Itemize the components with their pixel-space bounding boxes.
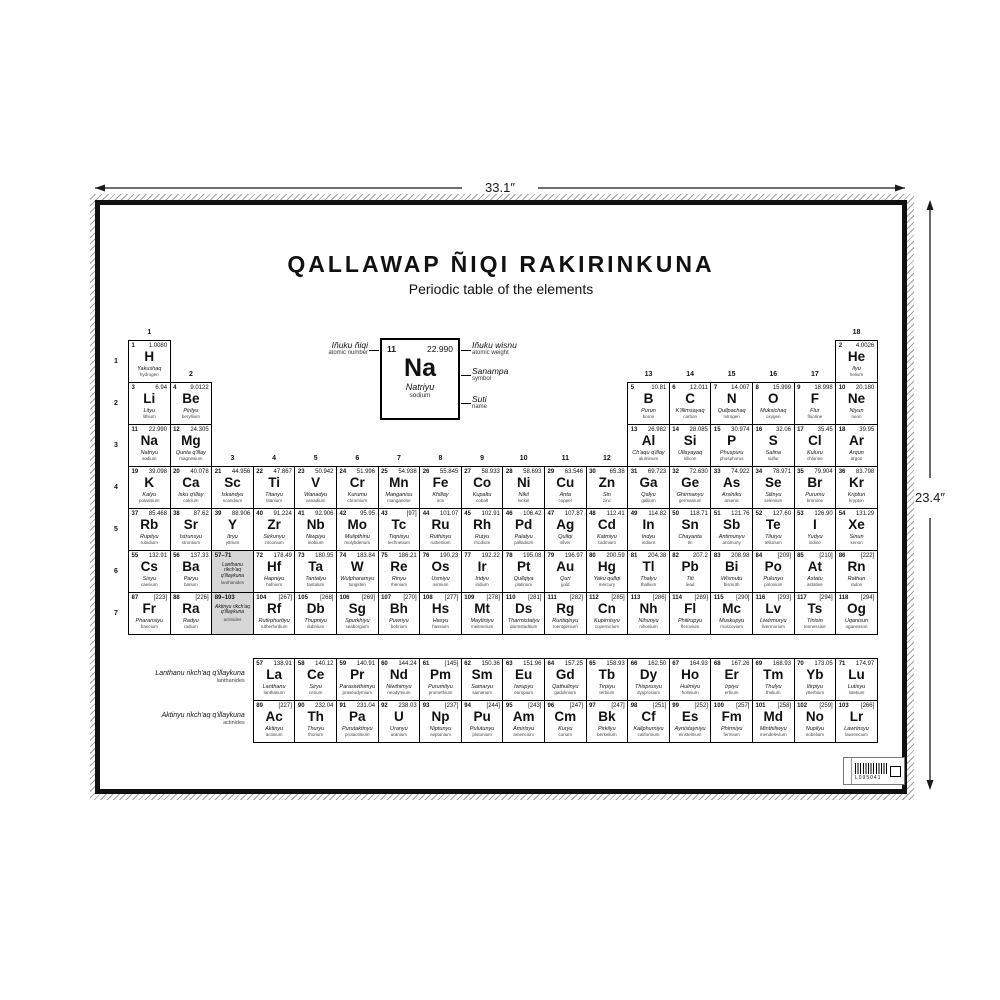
element-cell-Te: 52127.60TeTiluryutellurium <box>752 508 795 551</box>
element-cell-Zr: 4091.224ZrSirkunyuzirconium <box>253 508 296 551</box>
element-cell-Cm: 96[247]CmKuryucurium <box>544 700 587 743</box>
group-label-18: 18 <box>835 329 878 336</box>
period-label-2: 2 <box>108 400 124 407</box>
period-label-1: 1 <box>108 358 124 365</box>
element-cell-F: 918.998FFlurfluorine <box>794 382 837 425</box>
element-cell-At: 85[210]AtAstatuastatine <box>794 550 837 593</box>
group-label-3: 3 <box>211 455 254 462</box>
element-cell-As: 3374.922AsArsinikuarsenic <box>710 466 753 509</box>
group-label-14: 14 <box>669 371 712 378</box>
group-label-5: 5 <box>294 455 337 462</box>
element-cell-Og: 118[294]OgUqanisunoganesson <box>835 592 878 635</box>
element-cell-Lv: 116[293]LvLiwirmuryulivermorium <box>752 592 795 635</box>
element-cell-Kr: 3683.798KrKriptunkrypton <box>835 466 878 509</box>
placeholder-cell-89–103: 89–103Aktinyu rikch'aq q'illaykunaactini… <box>211 592 254 635</box>
element-cell-V: 2350.942VWanadyuvanadium <box>294 466 337 509</box>
element-cell-Fe: 2655.845FeKhillayiron <box>419 466 462 509</box>
element-cell-Be: 49.0122BePirilyuberyllium <box>170 382 213 425</box>
element-cell-Pu: 94[244]PuPulutunyuplutonium <box>461 700 504 743</box>
element-cell-Re: 75186.21ReRinyurhenium <box>378 550 421 593</box>
element-cell-U: 92238.03UUranyuuranium <box>378 700 421 743</box>
width-dimension-label: 33.1″ <box>485 180 515 195</box>
element-cell-Er: 68167.26ErIrpiyuerbium <box>710 658 753 701</box>
element-cell-Eu: 63151.96EuIwrupyueuropium <box>502 658 545 701</box>
element-cell-Ti: 2247.867TiTitanyutitanium <box>253 466 296 509</box>
element-cell-Tl: 81204.38TlThalyuthallium <box>627 550 670 593</box>
group-label-8: 8 <box>419 455 462 462</box>
period-label-4: 4 <box>108 484 124 491</box>
period-label-6: 6 <box>108 568 124 575</box>
element-cell-Mo: 4295.95MoMulipthinumolybdenum <box>336 508 379 551</box>
element-cell-Rf: 104[267]RfRutirphurtiyurutherfordium <box>253 592 296 635</box>
element-cell-Sb: 51121.76SbAntimunyuantimony <box>710 508 753 551</box>
element-cell-Tb: 65158.93TbTirpiyuterbium <box>586 658 629 701</box>
periodic-table: 11.0080HYakushaqhydrogen24.0026HeIlyuhel… <box>100 205 902 789</box>
element-cell-Ca: 2040.078CaIsku q'illaycalcium <box>170 466 213 509</box>
element-cell-Fr: 87[223]FrPharansiyufrancium <box>128 592 171 635</box>
element-cell-Hg: 80200.59HgYaku qullqimercury <box>586 550 629 593</box>
element-cell-Md: 101[258]MdMinthiliwyumendelevium <box>752 700 795 743</box>
element-cell-Rg: 111[282]RgRuntiqinyuroentgenium <box>544 592 587 635</box>
element-cell-H: 11.0080HYakushaqhydrogen <box>128 340 171 383</box>
element-cell-Fl: 114[289]FlPhilirupyuflerovium <box>669 592 712 635</box>
barcode-stripes <box>855 763 888 774</box>
actinides-row-label: Aktinyu rikch'aq q'illaykunaactinides <box>105 712 245 726</box>
element-cell-Bi: 83208.98BiWismutubismuth <box>710 550 753 593</box>
poster: QALLAWAP ÑIQI RAKIRINKUNA Periodic table… <box>95 200 907 794</box>
element-cell-Si: 1428.085SiUllayayaqsilicon <box>669 424 712 467</box>
element-cell-Sr: 3887.62SrIstrunsyustrontium <box>170 508 213 551</box>
group-label-16: 16 <box>752 371 795 378</box>
element-cell-Sn: 50118.71SnChayantatin <box>669 508 712 551</box>
element-cell-Lu: 71174.97LuLutisyulutetium <box>835 658 878 701</box>
element-cell-Se: 3478.971SeSilinyuselenium <box>752 466 795 509</box>
page: 33.1″ 23.4″ QALLAWAP ÑIQI RAKIRINKUNA Pe… <box>0 0 1000 1000</box>
element-cell-Ag: 47107.87AgQullqisilver <box>544 508 587 551</box>
element-cell-Pa: 91231.04PaPurutaktinyuprotactinium <box>336 700 379 743</box>
period-label-7: 7 <box>108 610 124 617</box>
element-cell-Cd: 48112.41CdKatmiyucadmium <box>586 508 629 551</box>
element-cell-B: 510.81BPurunboron <box>627 382 670 425</box>
period-label-5: 5 <box>108 526 124 533</box>
barcode-code: L095041 <box>855 775 888 781</box>
element-cell-Nd: 60144.24NdNiwthimyuneodymium <box>378 658 421 701</box>
group-label-10: 10 <box>502 455 545 462</box>
element-cell-Mn: 2554.938MnManganisumanganese <box>378 466 421 509</box>
element-cell-Am: 95[243]AmAmirisyuamericium <box>502 700 545 743</box>
height-dimension-label: 23.4″ <box>915 490 945 505</box>
element-cell-Gd: 64157.25GdQathulinyugadolinium <box>544 658 587 701</box>
element-cell-Db: 105[268]DbThupniyudubnium <box>294 592 337 635</box>
element-cell-W: 74183.84WWulpharamyutungsten <box>336 550 379 593</box>
element-cell-Ce: 58140.12CeSiryucerium <box>294 658 337 701</box>
element-cell-Cl: 1735.45ClKuluruchlorine <box>794 424 837 467</box>
barcode-sticker: L095041 <box>843 757 905 785</box>
element-cell-Rh: 45102.91RhRutyurhodium <box>461 508 504 551</box>
element-cell-Au: 79196.97AuQurigold <box>544 550 587 593</box>
element-cell-I: 53126.90IYudyuiodine <box>794 508 837 551</box>
element-cell-Lr: 103[266]LrLawrinsyulawrencium <box>835 700 878 743</box>
element-cell-Bk: 97[247]BkPirkilyuberkelium <box>586 700 629 743</box>
barcode-side-strip <box>844 758 852 784</box>
group-label-15: 15 <box>710 371 753 378</box>
element-cell-Y: 3988.906YItryuyttrium <box>211 508 254 551</box>
group-label-9: 9 <box>461 455 504 462</box>
element-cell-Es: 99[252]EsAynistayniyueinsteinium <box>669 700 712 743</box>
element-cell-Ru: 44101.07RuRuthinyuruthenium <box>419 508 462 551</box>
element-cell-Ba: 56137.33BaParyubarium <box>170 550 213 593</box>
element-cell-No: 102[259]NoNupilyunobelium <box>794 700 837 743</box>
element-cell-N: 714.007NQullpachaqnitrogen <box>710 382 753 425</box>
group-label-2: 2 <box>170 371 213 378</box>
group-label-7: 7 <box>378 455 421 462</box>
element-cell-Ne: 1020.180NeNiyunneon <box>835 382 878 425</box>
element-cell-Cs: 55132.91CsSisyucaesium <box>128 550 171 593</box>
element-cell-Fm: 100[257]FmPhirmiyufermium <box>710 700 753 743</box>
element-cell-Ho: 67164.93HoHulmiyuholmium <box>669 658 712 701</box>
element-cell-C: 612.011CK'illimsayaqcarbon <box>669 382 712 425</box>
element-cell-Rb: 3785.468RbRupityurubidium <box>128 508 171 551</box>
element-cell-Np: 93[237]NpNiptunyuneptunium <box>419 700 462 743</box>
period-label-3: 3 <box>108 442 124 449</box>
element-cell-Mt: 109[278]MtMaytiniyumeitnerium <box>461 592 504 635</box>
element-cell-Ga: 3169.723GaQalyugallium <box>627 466 670 509</box>
element-cell-Zn: 3065.38ZnSinzinc <box>586 466 629 509</box>
element-cell-Pr: 59140.91PrParasiwthimyupraseodymium <box>336 658 379 701</box>
element-cell-K: 1939.098KKalyupotassium <box>128 466 171 509</box>
element-cell-Sg: 106[269]SgSpurkhiyuseaborgium <box>336 592 379 635</box>
element-cell-Nb: 4192.906NbNiwpiyuniobium <box>294 508 337 551</box>
element-cell-Hs: 108[277]HsHasyuhassium <box>419 592 462 635</box>
element-cell-Pt: 78195.08PtQullqiyaplatinum <box>502 550 545 593</box>
element-cell-Dy: 66162.50DyThisprusyudysprosium <box>627 658 670 701</box>
element-cell-Hf: 72178.49HfHapniyuhafnium <box>253 550 296 593</box>
element-cell-Pm: 61[145]PmPurumityupromethium <box>419 658 462 701</box>
element-cell-Na: 1122.990NaNatriyusodium <box>128 424 171 467</box>
element-cell-Os: 76190.23OsUsmiyuosmium <box>419 550 462 593</box>
element-cell-Ge: 3272.630GeGhirmanyugermanium <box>669 466 712 509</box>
element-cell-He: 24.0026HeIlyuhelium <box>835 340 878 383</box>
element-cell-Cu: 2963.546CuAntacopper <box>544 466 587 509</box>
group-label-12: 12 <box>586 455 629 462</box>
barcode-mark-box <box>890 766 901 777</box>
element-cell-Ar: 1839.95ArArqunargon <box>835 424 878 467</box>
element-cell-Nh: 113[286]NhNihunyunihonium <box>627 592 670 635</box>
group-label-4: 4 <box>253 455 296 462</box>
element-cell-Al: 1326.982AlCh'aqu q'illayaluminum <box>627 424 670 467</box>
element-cell-Bh: 107[270]BhPuwriyubohrium <box>378 592 421 635</box>
element-cell-Sm: 62150.36SmSamaryusamarium <box>461 658 504 701</box>
group-label-13: 13 <box>627 371 670 378</box>
element-cell-Ni: 2858.693NiNikilnickel <box>502 466 545 509</box>
element-cell-Cn: 112[285]CnKupirnisyucopernicium <box>586 592 629 635</box>
element-cell-Xe: 54131.29XeSinunxenon <box>835 508 878 551</box>
group-label-11: 11 <box>544 455 587 462</box>
element-cell-Br: 3579.904BrPurumubromine <box>794 466 837 509</box>
group-label-1: 1 <box>128 329 171 336</box>
element-cell-Pb: 82207.2PbTitilead <box>669 550 712 593</box>
element-cell-Po: 84[209]PoPulunyupolonium <box>752 550 795 593</box>
element-cell-Ir: 77192.22IrIridyuiridium <box>461 550 504 593</box>
element-cell-Th: 90232.04ThThuryuthorium <box>294 700 337 743</box>
element-cell-Co: 2758.933CoKupaltucobalt <box>461 466 504 509</box>
element-cell-In: 49114.82InIndyuindium <box>627 508 670 551</box>
group-label-6: 6 <box>336 455 379 462</box>
element-cell-Mg: 1224.305MgQunta q'illaymagnesium <box>170 424 213 467</box>
element-cell-O: 815.999OMuksichaqoxygen <box>752 382 795 425</box>
element-cell-La: 57138.91LaLanthanulanthanum <box>253 658 296 701</box>
element-cell-Ds: 110[281]DsTharmistatyudarmstadtium <box>502 592 545 635</box>
element-cell-S: 1632.06SSalinasulfur <box>752 424 795 467</box>
element-cell-Yb: 70173.05YbItirpiyuytterbium <box>794 658 837 701</box>
element-cell-P: 1530.974PPhuspuruphosphorus <box>710 424 753 467</box>
lanthanides-row-label: Lanthanu rikch'aq q'illaykunalanthanides <box>105 670 245 684</box>
element-cell-Ac: 89[227]AcAktinyuactinium <box>253 700 296 743</box>
element-cell-Ts: 117[294]TsTinisintennessine <box>794 592 837 635</box>
element-cell-Li: 36.94LiLityulithium <box>128 382 171 425</box>
element-cell-Cf: 98[251]CfKaliphurniyucalifornium <box>627 700 670 743</box>
element-cell-Sc: 2144.956ScIskandyuscandium <box>211 466 254 509</box>
element-cell-Cr: 2451.996CrKurumuchromium <box>336 466 379 509</box>
element-cell-Ta: 73180.95TaTantalyutantalum <box>294 550 337 593</box>
element-cell-Tm: 69168.93TmThulyuthulium <box>752 658 795 701</box>
placeholder-cell-57–71: 57–71Lanthanu rikch'aq q'illaykunalantha… <box>211 550 254 593</box>
element-cell-Tc: 43[97]TcTiqnisyutechnetium <box>378 508 421 551</box>
element-cell-Pd: 46106.42PdPalatyupalladium <box>502 508 545 551</box>
group-label-17: 17 <box>794 371 837 378</box>
element-cell-Ra: 88[226]RaRadyuradium <box>170 592 213 635</box>
element-cell-Mc: 115[290]McMuskupyumoscovium <box>710 592 753 635</box>
element-cell-Rn: 86[222]RnRathunradon <box>835 550 878 593</box>
